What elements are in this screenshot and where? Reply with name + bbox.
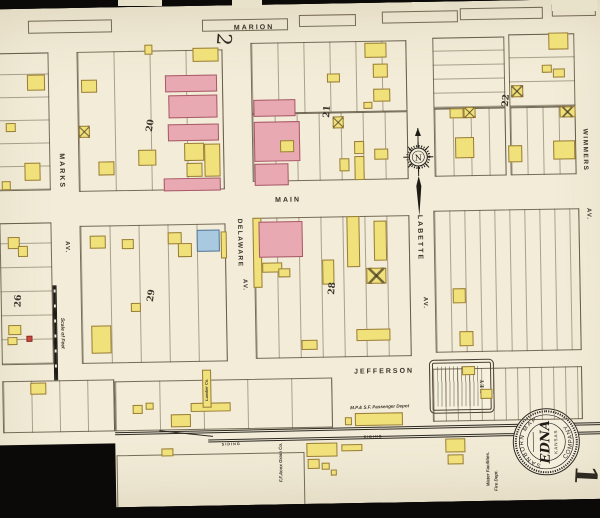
label-29: 29 xyxy=(146,289,158,303)
building xyxy=(164,177,221,191)
building xyxy=(197,229,220,251)
building xyxy=(168,123,219,141)
building xyxy=(146,403,154,410)
building xyxy=(327,73,340,82)
building xyxy=(204,143,221,176)
building xyxy=(122,239,134,249)
city-block xyxy=(116,452,305,509)
building xyxy=(480,389,492,399)
building xyxy=(165,74,217,92)
sheet-number-top: 2 xyxy=(212,32,237,47)
city-block xyxy=(382,10,458,23)
city-block xyxy=(2,379,115,433)
building xyxy=(254,163,288,186)
building xyxy=(373,221,387,261)
building xyxy=(184,143,204,161)
label-siding: SIDING xyxy=(364,434,383,439)
building xyxy=(333,116,344,128)
building xyxy=(373,64,388,78)
building xyxy=(131,303,141,312)
building xyxy=(553,140,575,159)
building xyxy=(448,454,464,464)
city-block xyxy=(28,19,112,33)
city-block xyxy=(460,7,543,20)
map-sheet-paper: KEY N xyxy=(0,0,600,510)
building xyxy=(363,102,372,109)
label-22: 22 xyxy=(501,94,512,107)
building xyxy=(364,43,386,58)
building xyxy=(455,137,474,158)
building xyxy=(171,414,191,427)
city-block xyxy=(432,36,505,108)
building xyxy=(462,366,475,375)
label-fire-dept-: Fire Dept. xyxy=(493,470,498,491)
building xyxy=(144,45,152,55)
building xyxy=(30,383,46,395)
seal-town-name: EDNA xyxy=(538,420,554,464)
label-f-f-acox-grain-co-: F.F.Acox Grain Co. xyxy=(278,443,284,483)
building xyxy=(91,325,111,353)
building xyxy=(356,329,390,342)
adjacent-sheet-tab xyxy=(552,0,597,11)
building xyxy=(366,268,386,284)
building xyxy=(221,231,227,258)
building xyxy=(355,412,403,426)
label-av-: AV. xyxy=(241,279,247,291)
label-main: MAIN xyxy=(275,197,301,204)
building xyxy=(553,68,565,77)
building xyxy=(453,288,466,303)
building xyxy=(322,463,330,470)
label-av-: AV. xyxy=(422,297,428,309)
label-siding: SIDING xyxy=(222,442,241,447)
building xyxy=(548,32,568,49)
city-block xyxy=(432,366,583,422)
label-lumber-co-: Lumber Co. xyxy=(204,379,209,401)
label-m-p-s-f-passenger-depot: M.P.& S.F. Passenger Depot xyxy=(350,403,409,410)
building xyxy=(339,158,349,171)
sheet-number-bottom: 1 xyxy=(567,464,600,487)
building xyxy=(463,107,475,118)
label-28: 28 xyxy=(327,282,338,295)
label-delaware: DELAWARE xyxy=(236,219,244,268)
building xyxy=(559,106,575,117)
building xyxy=(278,268,290,277)
building xyxy=(161,448,173,456)
building xyxy=(81,80,97,93)
building xyxy=(308,459,320,469)
city-block xyxy=(433,208,581,353)
building xyxy=(449,108,463,118)
building xyxy=(192,47,218,61)
label-marion: MARION xyxy=(234,24,275,32)
building xyxy=(178,243,192,257)
label-21: 21 xyxy=(322,105,333,118)
building xyxy=(90,235,106,248)
label-labette: LABETTE xyxy=(416,215,424,261)
compass-north-arrow xyxy=(415,128,421,136)
label-av-: AV. xyxy=(585,208,591,220)
scanned-sanborn-map-photo: KEY N xyxy=(0,0,600,518)
building xyxy=(345,417,352,425)
building xyxy=(373,88,390,101)
building xyxy=(459,331,473,346)
building xyxy=(18,246,28,257)
building xyxy=(253,99,295,117)
seal-state-name: KANSAS xyxy=(553,429,558,453)
building xyxy=(27,74,45,90)
compass-north-letter: N xyxy=(415,153,422,162)
building xyxy=(168,94,217,118)
building xyxy=(302,340,318,350)
label-26: 26 xyxy=(14,295,24,308)
building xyxy=(186,163,202,177)
building xyxy=(306,442,337,457)
building xyxy=(280,140,294,152)
adjacent-sheet-tab xyxy=(232,0,262,8)
building xyxy=(542,65,552,73)
building xyxy=(508,145,522,162)
adjacent-sheet-tab xyxy=(412,2,444,10)
compass-south-needle xyxy=(416,176,422,216)
building xyxy=(138,150,156,166)
building xyxy=(79,126,90,138)
building xyxy=(98,161,114,175)
label-water-facilities-: Water Facilities. xyxy=(485,452,491,486)
building xyxy=(6,123,16,132)
building xyxy=(331,469,337,475)
building xyxy=(24,163,40,181)
city-block xyxy=(299,14,356,27)
building xyxy=(346,216,360,267)
building xyxy=(354,156,364,180)
label-scale-of-feet: Scale of Feet xyxy=(59,318,66,349)
map-content: KEY N xyxy=(0,0,600,518)
building xyxy=(341,444,362,451)
label-marks: MARKS xyxy=(58,153,66,189)
building xyxy=(133,405,143,414)
label-jefferson: JEFFERSON xyxy=(354,368,414,376)
building xyxy=(445,438,465,452)
building xyxy=(354,141,364,154)
building xyxy=(8,325,21,335)
label-wimmers: WIMMERS xyxy=(581,129,589,172)
building xyxy=(511,85,523,97)
building xyxy=(258,221,303,258)
building xyxy=(7,337,17,345)
building xyxy=(26,336,32,342)
label-20: 20 xyxy=(145,119,157,133)
building xyxy=(374,149,388,160)
building xyxy=(2,181,11,190)
label-av-: AV. xyxy=(64,241,70,253)
adjacent-sheet-tab xyxy=(118,0,162,6)
